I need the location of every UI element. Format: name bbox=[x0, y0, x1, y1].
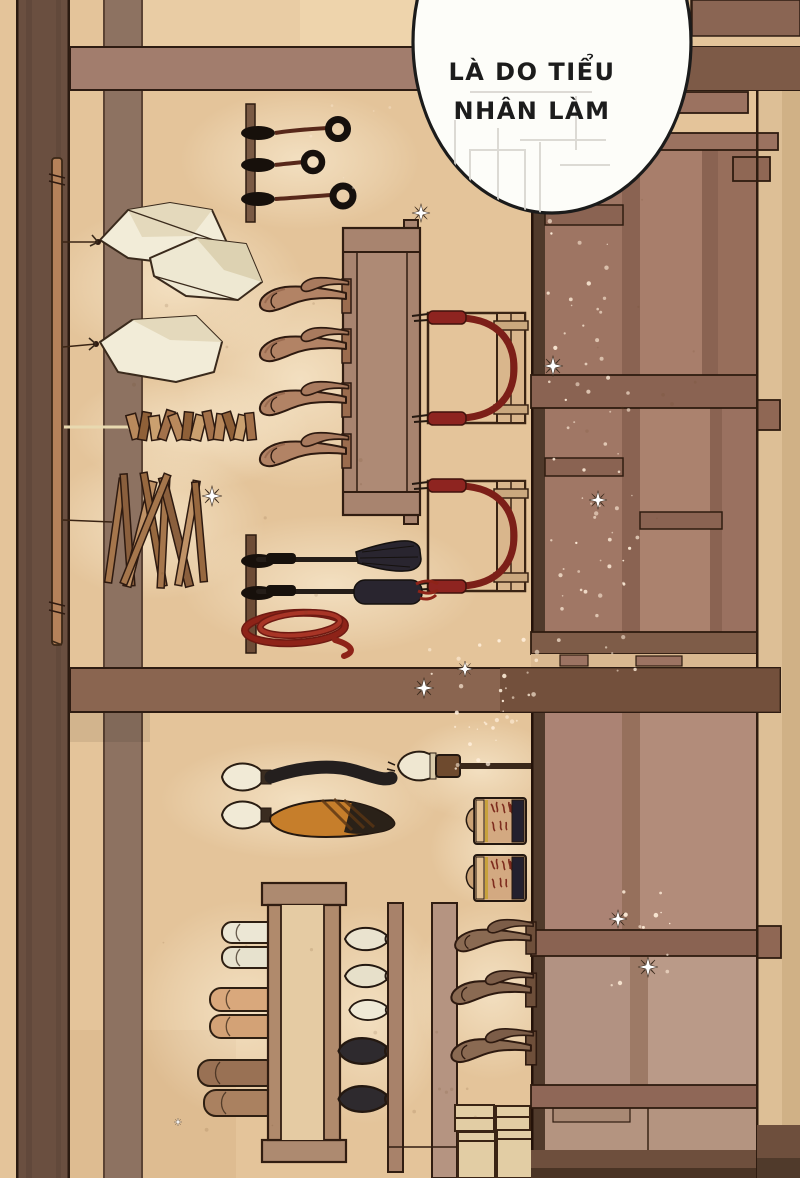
patterned-jar-2 bbox=[466, 855, 526, 901]
storage-boxes bbox=[455, 1105, 532, 1178]
display-table-lower bbox=[262, 883, 346, 1162]
wooden-staff bbox=[49, 158, 65, 645]
speech-line-2: NHÂN LÀM bbox=[402, 99, 662, 123]
patterned-jar-1 bbox=[466, 798, 526, 844]
wall-plank-seam bbox=[103, 0, 143, 1178]
speech-line-1: LÀ DO TIỂU bbox=[402, 60, 662, 84]
scene-artwork bbox=[0, 0, 800, 1178]
display-bench bbox=[343, 220, 420, 524]
comic-panel: LÀ DO TIỂU NHÂN LÀM bbox=[0, 0, 800, 1178]
